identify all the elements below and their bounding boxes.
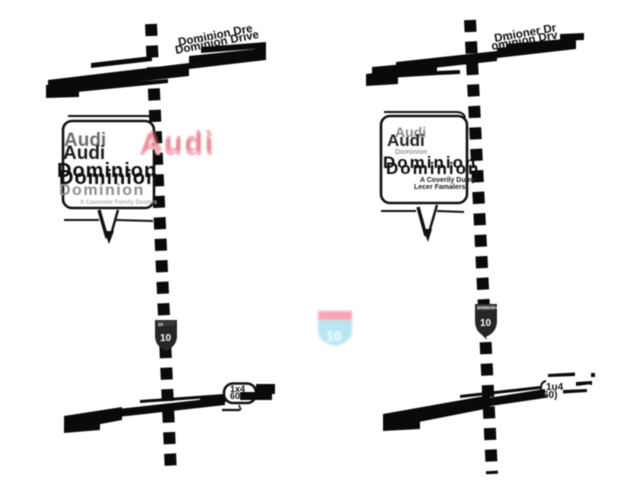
svg-text:Audi: Audi: [142, 126, 214, 158]
svg-text:60): 60): [543, 390, 557, 401]
svg-text:Dominion: Dominion: [59, 182, 145, 199]
svg-text:A Cavender Family Dealers: A Cavender Family Dealers: [80, 200, 158, 206]
svg-text:60: 60: [230, 391, 240, 401]
svg-text:Audi: Audi: [387, 131, 425, 150]
svg-text:Dominion: Dominion: [386, 159, 480, 178]
svg-text:A Coverily Dump: A Coverily Dump: [420, 177, 476, 184]
svg-text:INTERSTATE: INTERSTATE: [477, 306, 499, 310]
svg-text:10: 10: [480, 318, 492, 329]
svg-text:10: 10: [158, 322, 164, 327]
svg-text:10: 10: [326, 328, 342, 344]
svg-text:10: 10: [160, 333, 172, 344]
svg-text:Lecer Famalers: Lecer Famalers: [414, 184, 465, 191]
